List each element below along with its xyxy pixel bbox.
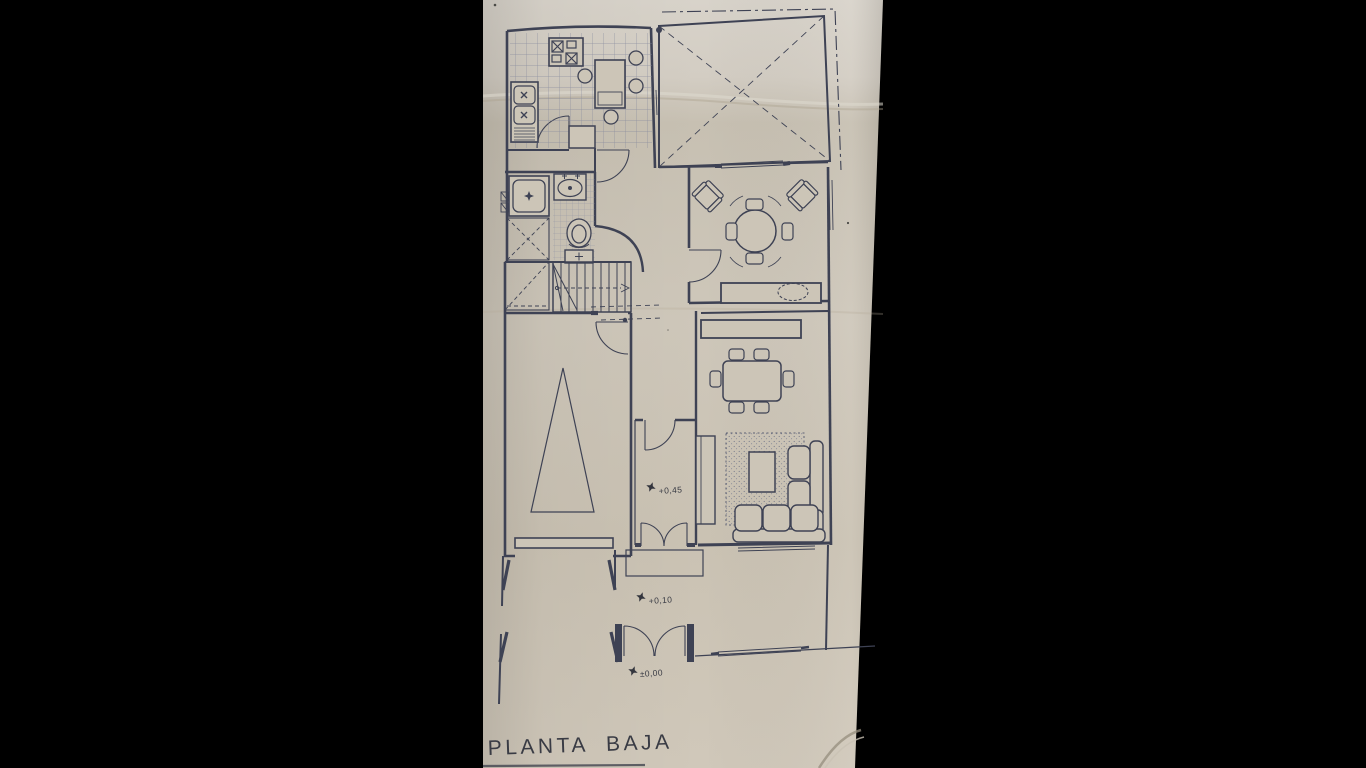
- photo-of-floor-plan: +0,45 +0,10 ±0,00 PLANTA BAJA: [0, 0, 1366, 768]
- gate-jamb-left: [615, 624, 622, 662]
- level-label-front-yard: +0,10: [648, 594, 672, 606]
- washbasin: [554, 174, 586, 200]
- garage-door-sill: [515, 538, 613, 548]
- floor-plan-drawing: +0,45 +0,10 ±0,00 PLANTA BAJA: [483, 0, 883, 768]
- coffee-table: [749, 452, 775, 492]
- toilet: [565, 219, 593, 263]
- gate-jamb-right: [687, 624, 694, 662]
- sheet-border-line: [483, 765, 645, 766]
- level-label-porch: +0,45: [658, 484, 682, 496]
- letterbox-left-bar: [0, 0, 483, 768]
- kitchen: [510, 33, 652, 148]
- shelving-unit: [696, 436, 715, 524]
- kitchen-closet: [569, 126, 595, 148]
- hinge-dot: [623, 318, 627, 322]
- kitchen-sink: [511, 82, 538, 142]
- level-label-entrance: ±0,00: [639, 667, 663, 679]
- letterbox-right-bar: [883, 0, 1366, 768]
- long-cabinet: [701, 320, 801, 338]
- sideboard: [721, 283, 821, 303]
- kitchen-stove: [549, 38, 583, 66]
- corner-post-dot: [656, 27, 662, 33]
- laundry-sink: [501, 176, 549, 216]
